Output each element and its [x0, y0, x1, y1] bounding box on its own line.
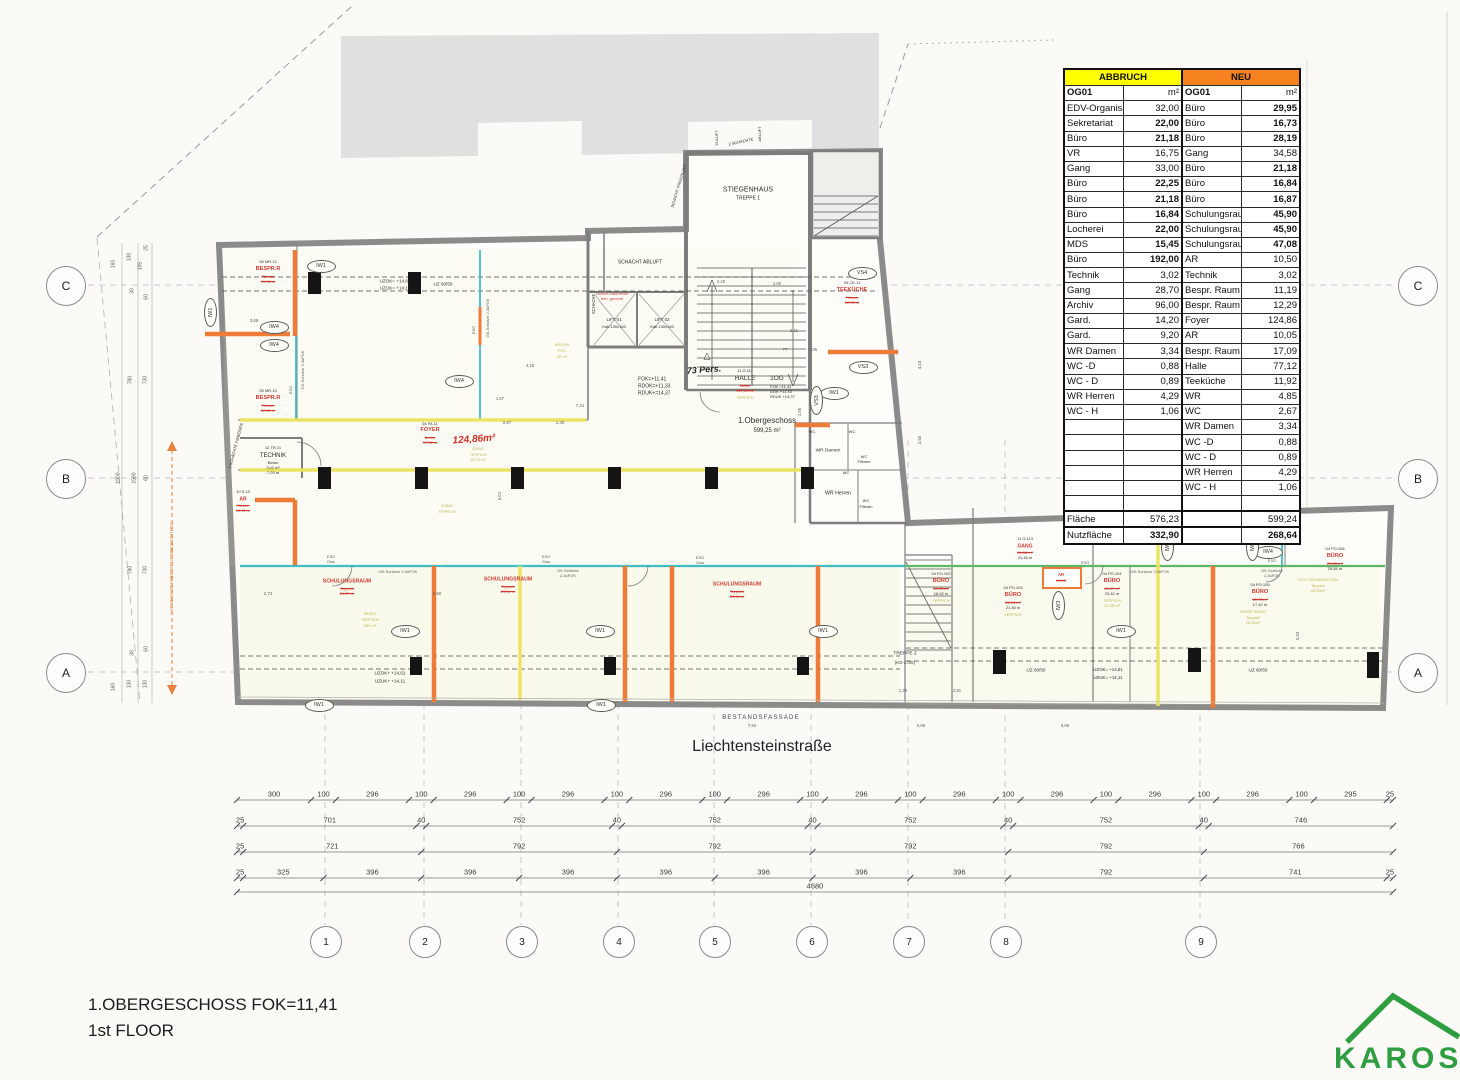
plan-label: 6,01	[498, 492, 502, 501]
dimension-value: 396	[660, 869, 673, 877]
dimension-value: 40	[613, 817, 621, 825]
plan-label: ABLUFT	[758, 126, 762, 141]
wall-type-bubble: IW1	[809, 625, 838, 638]
wall-type-bubble: VS4	[848, 267, 877, 280]
dimension-value: 25	[1386, 791, 1394, 799]
plan-label: SCHACHT ABLUFT	[618, 261, 662, 266]
dimension-value: 25	[236, 843, 244, 851]
vertical-dimension-value: 25	[145, 245, 150, 251]
plan-label: UZ 60/50	[1249, 669, 1268, 674]
plan-label: 22,00m²	[1246, 621, 1261, 625]
plan-label: FOK=+11,41	[638, 378, 666, 383]
grid-row-bubble: B	[46, 459, 86, 499]
table-row: EDV-Organisat.32,00Büro29,95	[1064, 101, 1300, 116]
plan-label: 417,94 m²	[736, 389, 754, 393]
plan-label: GK-Schürze 2,4üFOK	[486, 299, 490, 338]
plan-label: 22,25 m²	[1104, 604, 1120, 608]
plan-label: TREPPE 2	[893, 653, 916, 658]
facade-label: BESTANDSFASSADE	[722, 715, 800, 721]
dimension-value: 100	[1100, 791, 1113, 799]
plan-label: BÜRO	[1005, 593, 1021, 599]
dimension-value: 792	[708, 843, 721, 851]
plan-label: SCHULUNGSRAUM	[713, 582, 761, 587]
plan-label: 2,4üFOK	[560, 574, 576, 578]
plan-label: RDOK=+11,33	[638, 385, 670, 390]
plan-label: 2,20	[717, 280, 725, 284]
plan-label: UZOK= +14,61	[380, 280, 411, 285]
dimension-value: 100	[317, 791, 330, 799]
plan-label: ZULUFT	[715, 130, 719, 145]
table-row: Gang33,00Büro21,18	[1064, 161, 1300, 176]
grid-row-bubble: A	[46, 653, 86, 693]
vertical-dimension-value: 1900	[117, 472, 122, 483]
plan-label: 11 G.113	[1017, 537, 1033, 541]
plan-label: LIFT 02	[654, 318, 669, 322]
wall-type-bubble: IW1	[820, 387, 849, 400]
wall-type-bubble: IW1	[1107, 625, 1136, 638]
dimension-value: 296	[855, 791, 868, 799]
plan-label: 29,44 m	[730, 595, 744, 599]
plan-label: LIFT 01	[606, 318, 621, 322]
plan-label: UZ 60/50	[434, 283, 453, 288]
plan-label: TREPPE 1	[736, 197, 760, 202]
plan-label: 3,86	[1061, 724, 1070, 728]
plan-label: SCHACHT	[592, 294, 596, 314]
plan-label: 2,80	[773, 282, 781, 286]
plan-label: △	[704, 352, 711, 361]
plan-label: GK-Schürze 2,4üFOK	[301, 351, 305, 390]
plan-label: 17,42 m	[1253, 603, 1267, 607]
dimension-value: 766	[1292, 843, 1305, 851]
grid-column-bubble: 8	[990, 926, 1022, 958]
plan-label: GANG	[472, 447, 484, 451]
plan-label: 97,32 m	[423, 441, 437, 445]
plan-label: 3,69	[250, 319, 259, 323]
dimension-value: 396	[562, 869, 575, 877]
dimension-value: 396	[855, 869, 868, 877]
plan-label: 41,46 m	[1018, 556, 1032, 560]
table-row: Büro21,18Büro28,19	[1064, 131, 1300, 146]
plan-label: 29,84 m	[1328, 567, 1342, 571]
dimension-value: 40	[1004, 817, 1012, 825]
plan-label: Glas	[696, 561, 704, 565]
vertical-dimension-value: 105	[139, 262, 144, 270]
dimension-value: 100	[611, 791, 624, 799]
plan-label: 2,72	[264, 592, 273, 596]
vertical-dimension-value: 130	[128, 253, 133, 261]
dimension-value: 100	[1002, 791, 1015, 799]
plan-label: 04 PO.106	[1325, 547, 1344, 551]
dimension-value: 100	[1198, 791, 1211, 799]
table-row: WC - D0,89Teeküche11,92	[1064, 374, 1300, 389]
plan-label: BÜRO	[1327, 554, 1343, 560]
plan-label: WR Herren	[825, 491, 851, 496]
title-block: 1.OBERGESCHOSS FOK=11,41 1st FLOOR	[88, 992, 338, 1045]
dimension-value: 396	[757, 869, 770, 877]
dimension-value: 296	[562, 791, 575, 799]
plan-label: GK-Schürze 2,4üFOK	[1131, 570, 1170, 574]
dimension-value: 792	[1100, 869, 1113, 877]
plan-label: GANG	[441, 504, 453, 508]
grid-column-bubble: 9	[1185, 926, 1217, 958]
plan-label: 43,55m²	[1311, 589, 1326, 593]
table-row: Büro22,25Büro16,84	[1064, 177, 1300, 192]
vertical-dimension-value: 730	[144, 566, 149, 574]
wall-type-bubble: IW1	[587, 699, 616, 712]
plan-label: 04 PO.103	[1003, 586, 1022, 590]
vertical-dimension-value: 130	[128, 680, 133, 688]
dimension-value: 100	[513, 791, 526, 799]
grid-column-bubble: 7	[893, 926, 925, 958]
plan-label: WR Damen	[816, 450, 841, 455]
plan-label: 2,97	[503, 421, 512, 425]
table-row: Nutzfläche332,90268,64	[1064, 527, 1300, 543]
dimension-value: 100	[708, 791, 721, 799]
plan-label: BÜRO	[1252, 590, 1268, 596]
dimension-value: 100	[1295, 791, 1308, 799]
plan-label: UZUK= +14,11	[380, 287, 410, 292]
plan-label: SCHULUNGSRAUM	[484, 577, 532, 582]
grid-row-bubble: A	[1398, 653, 1438, 693]
table-row: MDS15,45Schulungsraum47,08	[1064, 237, 1300, 252]
plan-label: 1,30	[556, 421, 565, 425]
table-row: WC - H1,06	[1064, 480, 1300, 495]
grid-row-bubble: C	[46, 266, 86, 306]
table-row: WR Damen3,34Bespr. Raum17,09	[1064, 344, 1300, 359]
table-row: WR Herren4,29	[1064, 465, 1300, 480]
plan-label: 11.G.111	[737, 369, 753, 373]
vertical-dimension-value: 60	[145, 475, 150, 481]
plan-label: 05 MR.13	[259, 389, 276, 393]
table-row: Archiv96,00Bespr. Raum12,29	[1064, 298, 1300, 313]
plan-label: 23,42 m	[1105, 592, 1119, 596]
plan-label: 10,50	[1056, 579, 1066, 583]
plan-label: 18,92 m	[934, 592, 948, 596]
grid-column-bubble: 2	[409, 926, 441, 958]
plan-label: 77	[783, 348, 788, 352]
plan-label: 1,25	[899, 689, 907, 693]
floor-title-en: 1st FLOOR	[88, 1018, 338, 1044]
plan-label: PVC	[558, 349, 566, 353]
dimension-value: 296	[660, 791, 673, 799]
dimension-value: 721	[326, 843, 339, 851]
plan-label: TEPPICH	[736, 396, 753, 400]
grid-column-bubble: 5	[699, 926, 731, 958]
dimension-value: 752	[708, 817, 721, 825]
dimension-value: 746	[1295, 817, 1308, 825]
plan-label: 05 MR.12	[259, 260, 276, 264]
plan-label: AUFGEHENDE ARBEITSPLATZBELEUCHTUNG	[170, 522, 174, 614]
table-row: Büro192,00AR10,50	[1064, 253, 1300, 268]
plan-label: Glas	[542, 560, 550, 564]
plan-label: 2,85	[798, 408, 802, 416]
plan-label: 1,05	[809, 348, 817, 352]
plan-label: 12 TR.11	[265, 446, 281, 450]
plan-label: SCHULUNGSRAUM	[323, 579, 371, 584]
plan-label: 2,86	[917, 724, 926, 728]
plan-label: (KG-1.OG)	[895, 661, 915, 665]
plan-label: 2,4üFOK	[1264, 574, 1280, 578]
dimension-value: 396	[953, 869, 966, 877]
plan-label: 04 PO.104	[1102, 572, 1121, 576]
vertical-dimension-value: 1580	[133, 472, 138, 483]
plan-label: ARCHIV	[554, 343, 569, 347]
table-row: Locherei22,00Schulungsraum45,90	[1064, 222, 1300, 237]
table-row: WC - D0,89	[1064, 450, 1300, 465]
table-row: Gard.9,20AR10,05	[1064, 329, 1300, 344]
plan-label: Fliesen	[858, 460, 871, 464]
dimension-value: 296	[464, 791, 477, 799]
plan-label: SEKRETARIAT	[1239, 610, 1266, 614]
vertical-dimension-value: 130	[144, 680, 149, 688]
grid-row-bubble: B	[1398, 459, 1438, 499]
table-row: Büro16,84Schulungsraum45,90	[1064, 207, 1300, 222]
plan-label: STIEGENHAUS	[723, 187, 773, 194]
area-comparison-table: ABBRUCHNEUOG01m²OG01m²EDV-Organisat.32,0…	[1063, 68, 1301, 545]
plan-label: 192 m²	[364, 624, 376, 628]
plan-label: TEPPICH	[438, 510, 455, 514]
plan-label: UZ 60/50	[1027, 669, 1046, 674]
vertical-dimension-value: 790	[129, 566, 134, 574]
plan-label: WC	[863, 499, 870, 503]
table-row: VR16,75Gang34,58	[1064, 146, 1300, 161]
dimension-value: 752	[513, 817, 526, 825]
dimension-value: 701	[323, 817, 336, 825]
wall-type-bubble: IW4	[260, 339, 289, 352]
table-row: Sekretariat22,00Büro16,73	[1064, 116, 1300, 131]
plan-label: TEPPICH	[932, 599, 949, 603]
dimension-value: 295	[1344, 791, 1357, 799]
dimension-value: 4680	[807, 883, 824, 891]
wall-type-bubble: IW1	[586, 625, 615, 638]
dimension-value: 100	[806, 791, 819, 799]
plan-label: RDUK+=14,37	[638, 392, 671, 397]
dimension-value: 300	[268, 791, 281, 799]
vertical-dimension-value: 60	[145, 294, 150, 300]
dimension-value: 792	[513, 843, 526, 851]
plan-label: Kab.130x160	[650, 325, 674, 329]
dimension-value: 792	[1100, 843, 1113, 851]
plan-label: 12,53 m	[845, 301, 859, 305]
dimension-value: 296	[953, 791, 966, 799]
plan-label: TEPPICH	[1004, 613, 1021, 617]
dimension-value: 40	[808, 817, 816, 825]
plan-label: Glas	[327, 560, 335, 564]
table-row: Gard.14,20Foyer124,86	[1064, 313, 1300, 328]
plan-label: 21,46 m	[1006, 606, 1020, 610]
plan-label: UZUK+ +14,11	[375, 680, 405, 685]
dimension-value: 396	[366, 869, 379, 877]
karos-logo: KAROS	[1334, 1042, 1460, 1076]
plan-label: 29,87 m	[340, 592, 354, 596]
dimension-value: 40	[1200, 817, 1208, 825]
vertical-dimension-value: 160	[112, 683, 117, 691]
table-row: WR Herren4,29WR4,85	[1064, 389, 1300, 404]
wall-type-bubble: IW1	[391, 625, 420, 638]
plan-label: ESG	[1268, 559, 1276, 563]
plan-label: ESG	[289, 386, 293, 394]
vertical-dimension-value: 30	[131, 288, 136, 294]
street-name-label: Liechtensteinstraße	[692, 738, 832, 756]
dimension-value: 25	[236, 817, 244, 825]
wall-type-bubble: IW4	[260, 321, 289, 334]
plan-label: WC	[809, 430, 816, 434]
plan-label: 12,41 m	[261, 409, 275, 413]
plan-label: 28,70 m²	[470, 458, 486, 462]
vertical-dimension-value: 160	[112, 260, 117, 268]
plan-label: 4,15	[918, 361, 922, 370]
plan-label: FOYER	[420, 428, 439, 434]
dimension-value: 296	[757, 791, 770, 799]
plan-label: 7,41	[576, 404, 585, 408]
grid-column-bubble: 6	[796, 926, 828, 958]
grid-row-bubble: C	[1398, 266, 1438, 306]
plan-label: 19,36 m	[261, 280, 275, 284]
plan-label: BESPR.R	[256, 267, 281, 273]
table-row: WC -D0,88Halle77,12	[1064, 359, 1300, 374]
plan-label: BÜRO	[933, 579, 949, 585]
table-row: Gang28,70Bespr. Raum11,19	[1064, 283, 1300, 298]
vertical-dimension-value: 60	[145, 646, 150, 652]
plan-label: EDV-ORGANISATION	[1298, 578, 1338, 582]
plan-label: 04 PO.102	[931, 572, 950, 576]
plan-label: TEEKÜCHE	[837, 288, 868, 294]
wall-type-bubble: IW1	[305, 699, 334, 712]
plan-label: 1,57	[496, 397, 504, 401]
wall-type-bubble: IW3	[1052, 591, 1065, 620]
plan-label: 5,93	[1296, 632, 1300, 640]
dimension-value: 296	[1149, 791, 1162, 799]
dimension-value: 296	[1246, 791, 1259, 799]
plan-label: BÜRO	[364, 612, 376, 616]
dimension-value: 792	[904, 843, 917, 851]
wall-type-bubble: IW4	[445, 375, 474, 388]
plan-label: Kab.130x160	[602, 325, 626, 329]
dimension-value: 40	[417, 817, 425, 825]
dimension-value: 296	[1051, 791, 1064, 799]
wall-type-bubble: IW1	[204, 298, 217, 327]
wall-type-bubble: IW1	[307, 260, 336, 273]
plan-label: 1OG	[770, 376, 784, 383]
plan-label: 10,11 m	[236, 509, 250, 513]
plan-label: GK-Schürze 2,4üFOK	[379, 570, 418, 574]
plan-label: 2,50	[918, 436, 922, 445]
plan-label: 04 PO.105	[1250, 583, 1269, 587]
plan-label: 1.Obergeschoss	[738, 417, 796, 425]
vertical-dimension-value: 730	[144, 376, 149, 384]
plan-label: 2,81	[953, 689, 961, 693]
plan-label: HALLE	[735, 376, 756, 383]
dimension-value: 100	[415, 791, 428, 799]
plan-label: 29,44 m	[501, 590, 515, 594]
plan-label: UZOK+ +14,61	[375, 672, 406, 677]
dimension-value: 100	[904, 791, 917, 799]
plan-label: AR	[1058, 573, 1064, 577]
plan-label: ESG	[1081, 561, 1089, 565]
dimension-value: 296	[366, 791, 379, 799]
plan-label: GANG	[1018, 545, 1033, 550]
plan-label: WC	[849, 430, 856, 434]
plan-label: TECHNIK	[260, 453, 286, 459]
floor-title-de: 1.OBERGESCHOSS FOK=11,41	[88, 992, 338, 1018]
dimension-value: 741	[1289, 869, 1302, 877]
plan-label: RDUK +14,37	[770, 395, 795, 399]
table-header-abbruch: ABBRUCH	[1064, 69, 1182, 86]
plan-label: BÜRO	[1104, 579, 1120, 585]
plan-label: UZUK= +14,11	[1094, 676, 1123, 680]
plan-label: 599,25 m²	[753, 428, 780, 434]
grid-column-bubble: 1	[310, 926, 342, 958]
plan-label: 04 FA.11	[422, 422, 438, 426]
dimension-value: 752	[904, 817, 917, 825]
wall-type-bubble: VS3	[810, 386, 823, 415]
dimension-value: 25	[1386, 869, 1394, 877]
dimension-value: 752	[1100, 817, 1113, 825]
plan-label: 05 CK.11	[844, 281, 860, 285]
dimension-value: 25	[236, 869, 244, 877]
plan-label: AR	[239, 498, 246, 503]
plan-label: 2,11	[790, 329, 798, 333]
plan-label: UZOK= +14,61	[1093, 668, 1123, 672]
plan-label: 7,03 m	[267, 471, 279, 475]
wall-type-bubble: VS3	[849, 361, 878, 374]
plan-label: beh. gerecht	[601, 297, 623, 301]
plan-label: 7,92	[748, 724, 757, 728]
table-row: WC - H1,06WC2,67	[1064, 404, 1300, 419]
dimension-value: 325	[277, 869, 290, 877]
table-header-neu: NEU	[1182, 69, 1300, 86]
vertical-dimension-value: 790	[129, 376, 134, 384]
vertical-dimension-value: 30	[131, 650, 136, 656]
plan-label: Fliesen	[860, 505, 873, 509]
table-row: Fläche576,23599,24	[1064, 511, 1300, 527]
plan-label: 4,18	[526, 364, 534, 368]
plan-label: 10 S.13	[236, 490, 250, 494]
table-row	[1064, 496, 1300, 512]
grid-column-bubble: 3	[506, 926, 538, 958]
plan-label: 5,60	[433, 592, 442, 596]
plan-label: ESG	[472, 326, 476, 334]
plan-label: 96 m²	[557, 355, 567, 359]
table-row: WC -D0,88	[1064, 435, 1300, 450]
plan-label: TEPPICH	[361, 618, 378, 622]
table-row: Büro21,18Büro16,87	[1064, 192, 1300, 207]
table-row: WR Damen3,34	[1064, 420, 1300, 435]
table-row: Technik3,02Technik3,02	[1064, 268, 1300, 283]
grid-column-bubble: 4	[603, 926, 635, 958]
dimension-value: 396	[464, 869, 477, 877]
plan-label: BESPR.R	[256, 396, 281, 402]
plan-label: WC	[843, 471, 850, 475]
